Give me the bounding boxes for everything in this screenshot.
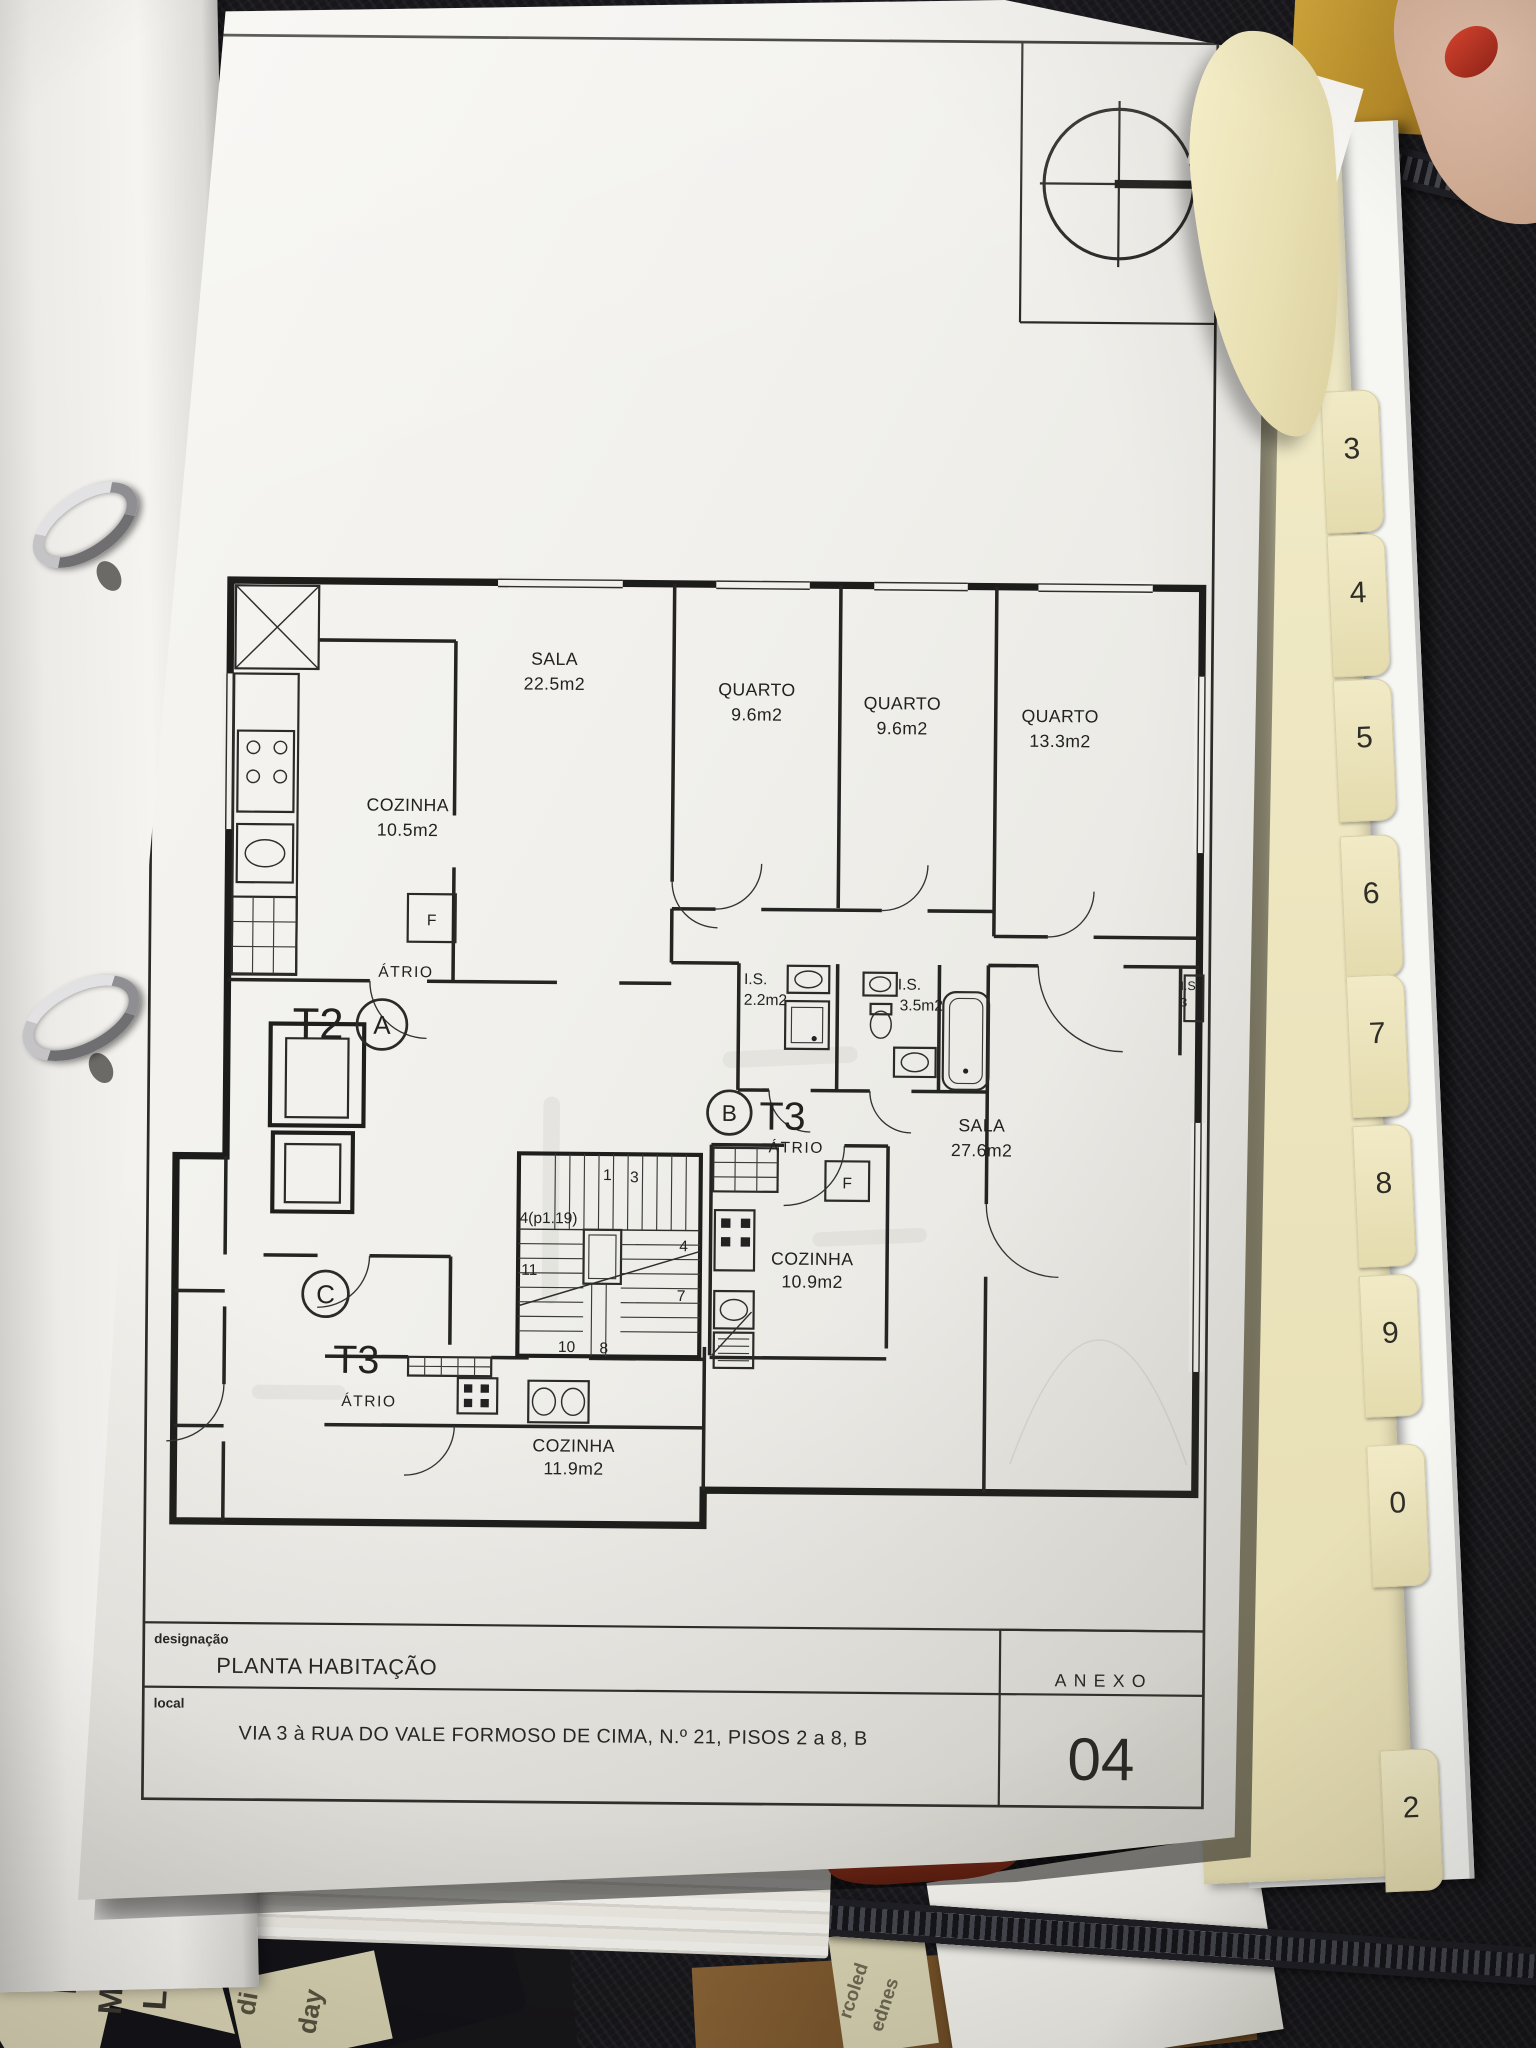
divider-tab[interactable]: 0 xyxy=(1366,1443,1430,1587)
plan-sheet: N xyxy=(78,0,1268,1900)
room-area-is-3: 3 xyxy=(1180,996,1187,1010)
local-label: local xyxy=(154,1695,185,1710)
tab-number: 5 xyxy=(1335,720,1394,756)
stair-number: 8 xyxy=(599,1340,608,1357)
room-label-quarto-2: QUARTO xyxy=(864,693,942,714)
room-area-sala-b: 27.6m2 xyxy=(951,1140,1013,1161)
room-area-cozinha-b: 10.9m2 xyxy=(781,1271,843,1292)
unit-c-id: C xyxy=(316,1279,335,1309)
divider-tab[interactable]: 7 xyxy=(1346,974,1410,1118)
room-label-cozinha-a: COZINHA xyxy=(367,795,450,816)
room-label-cozinha-c: COZINHA xyxy=(532,1435,615,1456)
kitchen-c-fixtures xyxy=(408,1357,589,1423)
room-area-is-1: 2.2m2 xyxy=(744,992,787,1009)
tab-number: 6 xyxy=(1341,876,1400,912)
divider-tab[interactable]: 4 xyxy=(1327,533,1391,677)
elevator-shafts xyxy=(269,1024,364,1213)
stair-number: 4(p1.19) xyxy=(519,1210,577,1227)
f-box-label-a: F xyxy=(427,912,437,929)
atrio-label-a: ÁTRIO xyxy=(378,962,434,981)
unit-a-type: T2 xyxy=(292,1000,343,1048)
stair-number: 10 xyxy=(558,1339,576,1356)
room-label-sala-b: SALA xyxy=(958,1115,1005,1135)
unit-c-type: T3 xyxy=(333,1338,379,1382)
title-block: designação PLANTA HABITAÇÃO local VIA 3 … xyxy=(153,1631,1153,1793)
tab-number: 4 xyxy=(1328,575,1387,611)
unit-b-id: B xyxy=(722,1100,737,1126)
windows xyxy=(217,573,1210,1372)
fingernail xyxy=(1434,15,1508,88)
kitchen-a-fixtures xyxy=(232,585,459,976)
designacao-value: PLANTA HABITAÇÃO xyxy=(216,1653,437,1680)
room-area-cozinha-a: 10.5m2 xyxy=(377,820,439,841)
room-area-sala-a: 22.5m2 xyxy=(524,673,586,694)
divider-tab[interactable]: 2 xyxy=(1380,1748,1444,1892)
room-label-is-3: I.S. xyxy=(1180,979,1199,993)
tab-number: 2 xyxy=(1381,1790,1440,1826)
anexo-label: ANEXO xyxy=(1055,1670,1153,1691)
f-box-label-b: F xyxy=(842,1175,852,1192)
photo-scene: Lundi Montag Lunes di day rcoled ednes 3… xyxy=(0,0,1536,2048)
anexo-number: 04 xyxy=(1067,1725,1135,1794)
room-label-quarto-3: QUARTO xyxy=(1021,706,1099,727)
atrio-label-b: ÁTRIO xyxy=(768,1137,824,1156)
tab-number: 7 xyxy=(1348,1016,1407,1052)
floor-plan-drawing: N xyxy=(92,3,1272,1881)
sheet-frame xyxy=(142,35,1217,1808)
local-value: VIA 3 à RUA DO VALE FORMOSO DE CIMA, N.º… xyxy=(238,1722,867,1749)
room-label-sala-a: SALA xyxy=(531,649,578,669)
stair-number: 4 xyxy=(679,1238,688,1255)
stair-number: 3 xyxy=(630,1169,639,1186)
unit-a-id: A xyxy=(373,1010,391,1040)
room-label-cozinha-b: COZINHA xyxy=(771,1249,854,1270)
room-area-is-2: 3.5m2 xyxy=(900,997,943,1014)
divider-tab[interactable]: 8 xyxy=(1352,1124,1416,1268)
tab-number: 9 xyxy=(1361,1315,1420,1351)
divider-tab[interactable]: 9 xyxy=(1359,1273,1423,1417)
room-area-quarto-1: 9.6m2 xyxy=(731,704,782,724)
room-label-quarto-1: QUARTO xyxy=(718,679,796,700)
tab-number: 0 xyxy=(1368,1485,1427,1521)
divider-tab[interactable]: 3 xyxy=(1320,389,1384,533)
stair-number: 7 xyxy=(677,1288,686,1305)
divider-tab[interactable]: 6 xyxy=(1340,834,1404,978)
tab-number: 3 xyxy=(1322,431,1381,467)
stair-number: 11 xyxy=(521,1262,537,1279)
bathroom-fixtures xyxy=(785,966,1204,1092)
designacao-label: designação xyxy=(154,1631,228,1647)
room-area-quarto-2: 9.6m2 xyxy=(876,718,927,738)
divider-tab[interactable]: 5 xyxy=(1333,678,1397,822)
stair-number: 1 xyxy=(603,1167,612,1184)
unit-b-type: T3 xyxy=(759,1095,805,1139)
atrio-label-c: ÁTRIO xyxy=(341,1391,397,1410)
room-label-is-1: I.S. xyxy=(744,971,768,988)
tab-number: 8 xyxy=(1354,1166,1413,1202)
room-area-cozinha-c: 11.9m2 xyxy=(543,1458,603,1479)
room-area-quarto-3: 13.3m2 xyxy=(1029,731,1091,752)
room-label-is-2: I.S. xyxy=(898,977,922,994)
